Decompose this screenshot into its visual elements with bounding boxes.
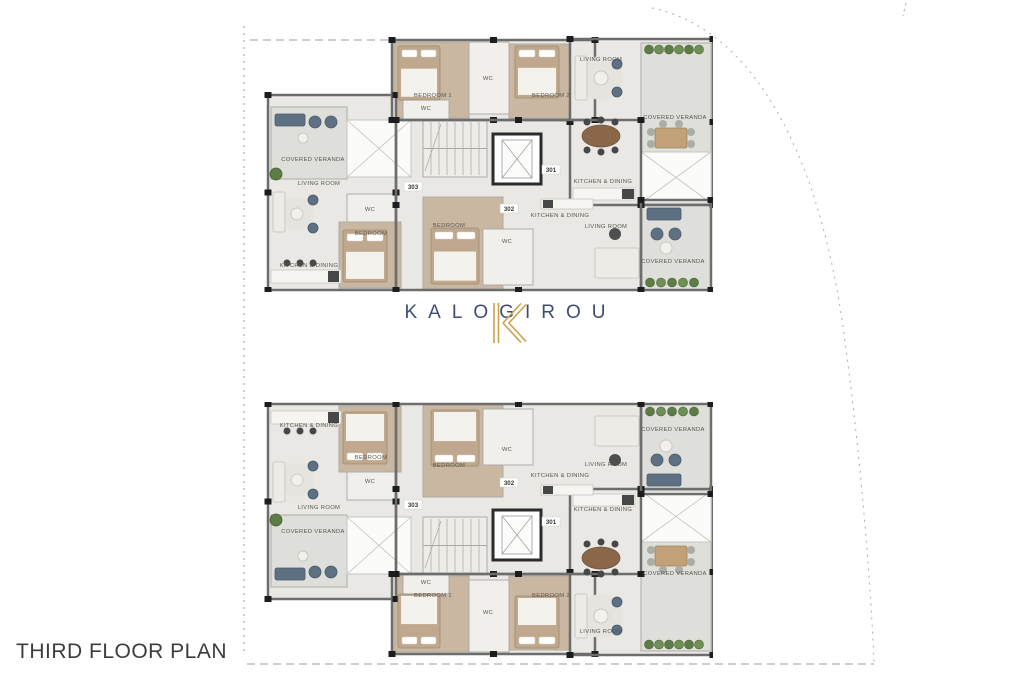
- staircase: [423, 120, 487, 177]
- void-lightwell: [347, 120, 411, 177]
- sofa: [273, 462, 285, 502]
- stool: [584, 119, 591, 126]
- dining-chair: [687, 546, 695, 554]
- room-label: LIVING ROOM: [580, 57, 623, 63]
- kitchen-appliance: [328, 412, 339, 423]
- wall-column: [515, 287, 522, 292]
- bed-pillow: [457, 455, 475, 462]
- room-label: BEDROOM: [355, 231, 387, 237]
- bed-pillow: [402, 637, 417, 644]
- wall-column: [567, 36, 574, 42]
- bed: [515, 596, 559, 648]
- wall-column: [515, 571, 522, 577]
- unit-number: 302: [500, 204, 518, 213]
- wall-column: [265, 190, 272, 196]
- sofa: [595, 248, 639, 278]
- wall-column: [710, 36, 714, 42]
- bed-sheet: [518, 598, 556, 625]
- room-label: KITCHEN & DINING: [531, 213, 590, 219]
- bed-pillow: [519, 50, 535, 57]
- bed-pillow: [539, 637, 555, 644]
- coffee-table: [660, 242, 672, 254]
- wall-column: [265, 499, 272, 505]
- plant: [675, 45, 684, 54]
- room-wc-301: [469, 580, 509, 652]
- unit-number-text: 303: [408, 184, 419, 191]
- room-label: BEDROOM: [433, 223, 465, 229]
- armchair: [651, 228, 663, 240]
- plant: [679, 407, 688, 416]
- armchair: [308, 489, 318, 499]
- bed-sheet: [434, 412, 476, 441]
- stool: [584, 147, 591, 154]
- bed: [431, 228, 479, 284]
- armchair: [308, 223, 318, 233]
- wall-column: [389, 651, 396, 657]
- kitchen-appliance: [543, 486, 553, 494]
- boundary-tick: [903, 3, 906, 16]
- wall-column: [265, 596, 272, 602]
- room-label: LIVING ROOM: [298, 505, 341, 511]
- stool: [612, 147, 619, 154]
- plant: [646, 278, 655, 287]
- page-root: BEDROOM 1WCBEDROOM 2LIVING ROOMCOVERED V…: [0, 0, 1024, 682]
- bed-sheet: [346, 252, 384, 279]
- room-label: KITCHEN & DINING: [280, 263, 339, 269]
- bed: [398, 594, 440, 648]
- armchair: [612, 597, 622, 607]
- stool: [598, 539, 605, 546]
- veranda-table: [655, 546, 687, 566]
- room-label: COVERED VERANDA: [641, 427, 705, 433]
- elevator: [493, 134, 541, 184]
- plant: [646, 407, 655, 416]
- wall-column: [515, 402, 522, 407]
- drawing-title: THIRD FLOOR PLAN: [16, 640, 227, 664]
- bed-pillow: [435, 455, 453, 462]
- room-wc-302: [483, 229, 533, 285]
- armchair: [309, 116, 321, 128]
- armchair: [612, 87, 622, 97]
- wall-column: [515, 117, 522, 123]
- room-label: WC: [421, 106, 431, 112]
- room-label: KITCHEN & DINING: [280, 423, 339, 429]
- dining-table: [582, 125, 620, 147]
- kitchen-appliance: [622, 189, 634, 199]
- room-label: WC: [365, 207, 375, 213]
- outdoor-sofa: [647, 208, 681, 220]
- wall-column: [265, 287, 272, 292]
- plant: [657, 278, 666, 287]
- unit-number: 302: [500, 478, 518, 487]
- floor-plan-lower-block: BEDROOM 1WCBEDROOM 2LIVING ROOMCOVERED V…: [243, 402, 713, 672]
- stool: [598, 149, 605, 156]
- logo-k-strokes: [494, 303, 526, 343]
- plant: [695, 640, 704, 649]
- coffee-table: [594, 71, 608, 85]
- stool: [584, 541, 591, 548]
- room-label: KITCHEN & DINING: [531, 473, 590, 479]
- bed-pillow: [402, 50, 417, 57]
- wall-column: [393, 287, 400, 292]
- plant: [690, 407, 699, 416]
- dining-chair: [687, 128, 695, 136]
- kitchen-appliance: [328, 271, 339, 282]
- room-label: BEDROOM: [355, 455, 387, 461]
- kitchen-appliance: [543, 200, 553, 208]
- room-label: COVERED VERANDA: [641, 259, 705, 265]
- wall-column: [638, 287, 645, 292]
- armchair: [325, 566, 337, 578]
- wall-column: [708, 491, 714, 497]
- armchair: [308, 195, 318, 205]
- plant: [675, 640, 684, 649]
- planter-row: [646, 278, 699, 287]
- wall-column: [708, 402, 714, 407]
- kitchen-appliance: [622, 495, 634, 505]
- plant: [645, 45, 654, 54]
- wall-column: [393, 202, 400, 208]
- plant: [685, 45, 694, 54]
- unit-number: 303: [404, 182, 422, 191]
- unit-number-text: 302: [504, 206, 515, 213]
- plant: [665, 45, 674, 54]
- bed-sheet: [401, 596, 437, 624]
- outdoor-sofa: [275, 114, 305, 126]
- room-label: WC: [483, 76, 493, 82]
- unit-number-text: 301: [546, 167, 557, 174]
- stool: [598, 571, 605, 578]
- room-label: WC: [421, 580, 431, 586]
- wall-column: [710, 569, 714, 575]
- room-label: KITCHEN & DINING: [574, 179, 633, 185]
- floor-plan-upper-block: BEDROOM 1WCBEDROOM 2LIVING ROOMCOVERED V…: [243, 22, 713, 292]
- unit-number-text: 302: [504, 480, 515, 487]
- bed-pillow: [435, 232, 453, 239]
- bed-pillow: [421, 50, 436, 57]
- veranda-table: [655, 128, 687, 148]
- stool: [584, 569, 591, 576]
- unit-number-text: 303: [408, 502, 419, 509]
- room-label: COVERED VERANDA: [281, 529, 345, 535]
- planter-row: [646, 407, 699, 416]
- dining-chair: [687, 140, 695, 148]
- void-lightwell: [641, 152, 711, 203]
- elevator: [493, 510, 541, 560]
- armchair: [308, 461, 318, 471]
- sofa: [595, 416, 639, 446]
- wall-column: [393, 486, 400, 492]
- plant: [679, 278, 688, 287]
- coffee-table: [660, 440, 672, 452]
- room-label: COVERED VERANDA: [281, 157, 345, 163]
- room-label: WC: [483, 610, 493, 616]
- room-label: BEDROOM: [433, 463, 465, 469]
- unit-number: 303: [404, 500, 422, 509]
- bed-pillow: [457, 232, 475, 239]
- armchair: [651, 454, 663, 466]
- outdoor-sofa: [647, 474, 681, 486]
- bed: [343, 230, 387, 282]
- dining-table: [582, 547, 620, 569]
- void-lightwell: [641, 491, 711, 542]
- wall-column: [708, 197, 714, 203]
- wall-column: [708, 287, 714, 292]
- room-label: BEDROOM 1: [414, 593, 452, 599]
- wall-column: [265, 92, 272, 98]
- dining-chair: [687, 558, 695, 566]
- kalogirou-logo: KALOGIROU: [380, 302, 630, 324]
- wall-column: [567, 652, 574, 658]
- dining-chair: [659, 120, 667, 128]
- bed: [431, 410, 479, 466]
- dining-chair: [675, 120, 683, 128]
- coffee-table: [291, 208, 303, 220]
- armchair: [669, 228, 681, 240]
- room-wc-302: [483, 409, 533, 465]
- room-label: WC: [365, 479, 375, 485]
- wall-column: [389, 37, 396, 43]
- armchair: [325, 116, 337, 128]
- room-label: KITCHEN & DINING: [574, 507, 633, 513]
- plant: [685, 640, 694, 649]
- wall-column: [490, 37, 497, 43]
- wall-column: [638, 197, 645, 203]
- room-label: COVERED VERANDA: [643, 571, 707, 577]
- armchair: [669, 454, 681, 466]
- stool: [612, 569, 619, 576]
- room-label: BEDROOM 1: [414, 93, 452, 99]
- bed-sheet: [434, 252, 476, 281]
- outdoor-sofa: [275, 568, 305, 580]
- room-label: LIVING ROOM: [580, 629, 623, 635]
- bed-pillow: [421, 637, 436, 644]
- room-label: BEDROOM 2: [532, 93, 570, 99]
- plant: [695, 45, 704, 54]
- room-label: LIVING ROOM: [585, 462, 628, 468]
- coffee-table: [594, 609, 608, 623]
- room-label: BEDROOM 2: [532, 593, 570, 599]
- plant: [657, 407, 666, 416]
- wall-column: [638, 402, 645, 407]
- plant: [668, 407, 677, 416]
- room-label: COVERED VERANDA: [643, 115, 707, 121]
- coffee-table: [298, 551, 308, 561]
- bed-pillow: [519, 637, 535, 644]
- wall-column: [710, 652, 714, 658]
- room-wc-303: [347, 470, 395, 500]
- void-lightwell: [347, 517, 411, 574]
- room-label: WC: [502, 447, 512, 453]
- room-label: LIVING ROOM: [585, 224, 628, 230]
- armchair: [309, 566, 321, 578]
- wall-column: [265, 402, 272, 407]
- room-label: LIVING ROOM: [298, 181, 341, 187]
- plant: [655, 640, 664, 649]
- bed: [515, 46, 559, 98]
- bed: [398, 46, 440, 100]
- plant: [270, 168, 282, 180]
- wall-column: [710, 119, 714, 125]
- sofa: [273, 192, 285, 232]
- plant: [690, 278, 699, 287]
- stool: [612, 119, 619, 126]
- wall-column: [393, 117, 400, 123]
- wall-column: [393, 571, 400, 577]
- plant: [655, 45, 664, 54]
- dining-chair: [647, 128, 655, 136]
- kalogirou-logo-mark-icon: [482, 302, 528, 344]
- stool: [612, 541, 619, 548]
- plant: [668, 278, 677, 287]
- bed-sheet: [518, 68, 556, 95]
- wall-column: [638, 491, 645, 497]
- coffee-table: [298, 133, 308, 143]
- wall-column: [393, 402, 400, 407]
- staircase: [423, 517, 487, 574]
- plant: [665, 640, 674, 649]
- plant: [270, 514, 282, 526]
- dining-chair: [647, 546, 655, 554]
- dining-chair: [647, 140, 655, 148]
- stool: [598, 117, 605, 124]
- coffee-table: [291, 474, 303, 486]
- unit-number: 301: [542, 165, 560, 174]
- unit-number: 301: [542, 517, 560, 526]
- wall-column: [490, 651, 497, 657]
- bed-sheet: [346, 414, 384, 441]
- unit-number-text: 301: [546, 519, 557, 526]
- dining-chair: [647, 558, 655, 566]
- bed-pillow: [539, 50, 555, 57]
- room-label: WC: [502, 239, 512, 245]
- plant: [645, 640, 654, 649]
